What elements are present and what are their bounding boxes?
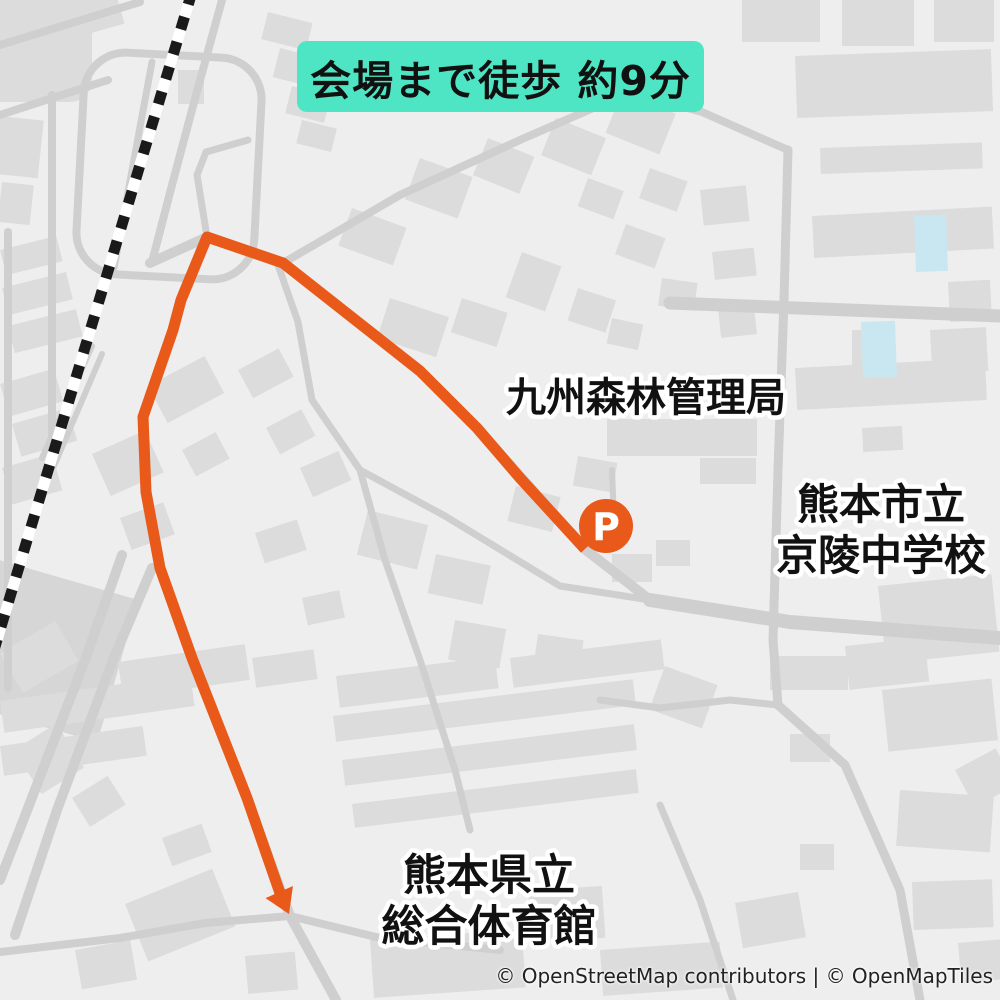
label-keiryo-junior-high-school: 京陵中学校 bbox=[776, 531, 986, 580]
walk-time-banner: 会場まで徒歩 約9分 bbox=[297, 41, 704, 112]
map-canvas[interactable]: P 九州森林管理局熊本市立京陵中学校熊本県立総合体育館 会場まで徒歩 約9分 ©… bbox=[0, 0, 1000, 1000]
pool bbox=[861, 321, 897, 378]
label-prefectural-gymnasium: 総合体育館 bbox=[382, 902, 597, 952]
map-image: P 九州森林管理局熊本市立京陵中学校熊本県立総合体育館 bbox=[0, 0, 1000, 1000]
label-prefectural-gymnasium: 熊本県立 bbox=[403, 851, 575, 901]
walk-time-text: 会場まで徒歩 約9分 bbox=[310, 47, 691, 107]
label-kyushu-forest-bureau: 九州森林管理局 bbox=[506, 375, 786, 421]
pool bbox=[914, 215, 948, 272]
label-keiryo-junior-high-school: 熊本市立 bbox=[797, 480, 965, 529]
parking-letter: P bbox=[592, 505, 620, 549]
attribution-text[interactable]: © OpenStreetMap contributors | © OpenMap… bbox=[495, 964, 993, 988]
map-attribution[interactable]: © OpenStreetMap contributors | © OpenMap… bbox=[495, 964, 993, 988]
parking-marker: P bbox=[579, 499, 633, 553]
